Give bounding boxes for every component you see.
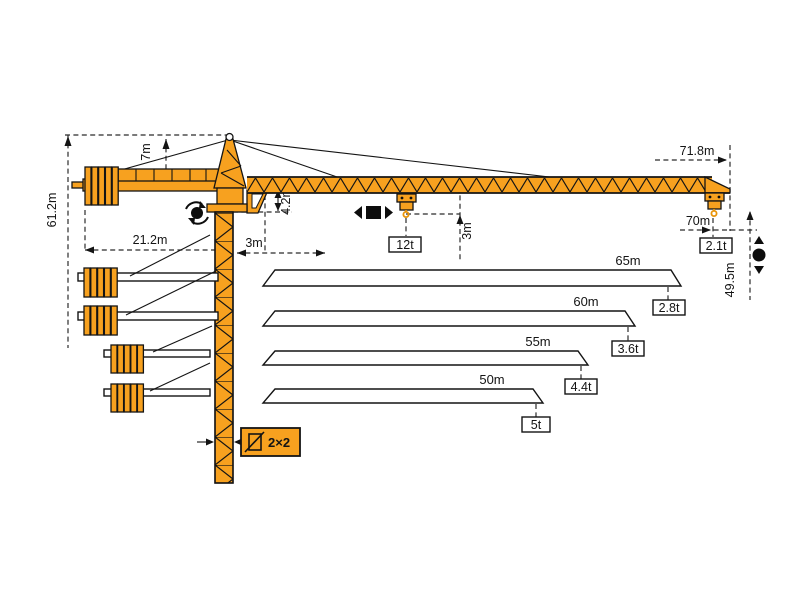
apex-pulley: [226, 134, 233, 141]
jib-option-row: 60m 3.6t: [263, 294, 644, 356]
max-capacity-label: 12t: [389, 237, 421, 252]
counterweight-options: [78, 235, 218, 412]
jib-capacity-label: 5t: [531, 418, 542, 432]
counterweight-stack: [85, 167, 118, 205]
slew-rotation-icon: [186, 201, 208, 225]
counterweight-option-row: [104, 326, 212, 373]
tower-mast: [215, 212, 233, 483]
jib-option-row: 55m 4.4t: [263, 334, 597, 394]
dim-apex-height: 7m: [139, 143, 153, 160]
jib-length-label: 55m: [525, 334, 550, 349]
trolley-travel-icon: [354, 206, 393, 219]
tower-crane-load-diagram: 61.2m 7m 21.2m 3m 4.2m 3m 71.8m 70m 49.5…: [0, 0, 800, 600]
dim-min-radius: 3m: [245, 236, 262, 250]
jib-tip: [705, 177, 730, 193]
jib-length-label: 60m: [573, 294, 598, 309]
tip-capacity-value: 2.1t: [706, 239, 727, 253]
dim-counterjib-radius: 21.2m: [133, 233, 168, 247]
jib-length-label: 50m: [479, 372, 504, 387]
jib-tip-trolley: [705, 193, 724, 216]
dim-max-hook-radius: 70m: [686, 214, 710, 228]
dim-tip-radius: 71.8m: [680, 144, 715, 158]
slewing-platform: [207, 204, 247, 212]
dim-hook-height-max: 61.2m: [45, 193, 59, 228]
jib-option-row: 65m 2.8t: [263, 253, 685, 315]
dim-hook-clearance: 3m: [460, 222, 474, 239]
jib-option-row: 50m 5t: [263, 372, 550, 432]
jib-length-options: 65m 2.8t 60m 3.6t 55m 4.4t 50m 5t: [263, 253, 685, 432]
jib-capacity-label: 2.8t: [659, 301, 680, 315]
hook-hoist-icon: [753, 236, 766, 274]
mast-section-value: 2×2: [268, 435, 290, 450]
counter-jib: [72, 167, 224, 205]
diagram-canvas: 61.2m 7m 21.2m 3m 4.2m 3m 71.8m 70m 49.5…: [0, 0, 800, 600]
mast-section-callout: 2×2: [197, 428, 300, 456]
tip-capacity-label: 2.1t: [700, 238, 732, 253]
jib-length-label: 65m: [615, 253, 640, 268]
jib-capacity-label: 3.6t: [618, 342, 639, 356]
dim-tip-hook-height: 49.5m: [723, 263, 737, 298]
max-capacity-value: 12t: [396, 238, 414, 252]
main-jib: [247, 177, 730, 193]
jib-capacity-label: 4.4t: [571, 380, 592, 394]
